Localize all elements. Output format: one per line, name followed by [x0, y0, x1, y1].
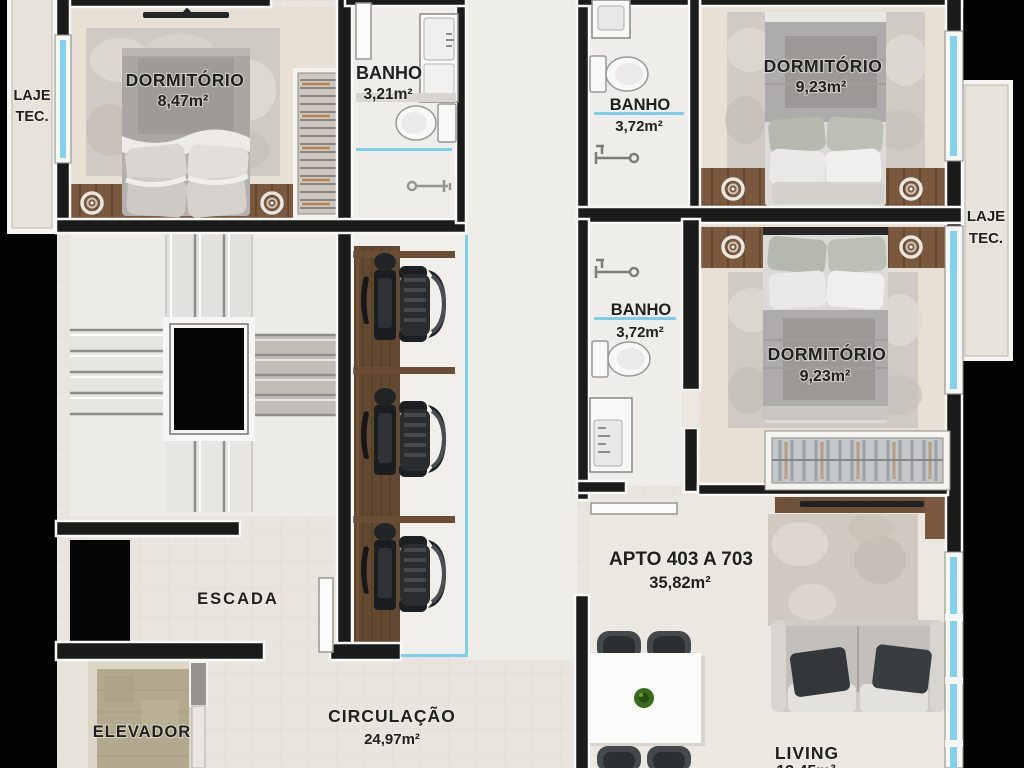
- svg-text:TEC.: TEC.: [969, 230, 1003, 247]
- svg-text:3,21m²: 3,21m²: [363, 86, 412, 103]
- svg-text:9,23m²: 9,23m²: [800, 368, 851, 385]
- svg-text:BANHO: BANHO: [610, 96, 671, 114]
- svg-text:24,97m²: 24,97m²: [364, 731, 420, 748]
- svg-text:35,82m²: 35,82m²: [649, 574, 711, 592]
- svg-text:ELEVADOR: ELEVADOR: [93, 723, 191, 741]
- svg-text:DORMITÓRIO: DORMITÓRIO: [764, 55, 883, 76]
- svg-text:LAJE: LAJE: [967, 208, 1005, 225]
- svg-text:BANHO: BANHO: [611, 301, 672, 319]
- svg-text:CIRCULAÇÃO: CIRCULAÇÃO: [328, 705, 456, 726]
- svg-text:3,72m²: 3,72m²: [615, 118, 663, 135]
- svg-text:LAJE: LAJE: [13, 88, 50, 104]
- svg-text:BANHO: BANHO: [356, 63, 422, 83]
- svg-text:LIVING: LIVING: [775, 743, 839, 763]
- svg-text:3,72m²: 3,72m²: [616, 324, 664, 341]
- svg-text:13,45m²: 13,45m²: [776, 763, 836, 768]
- svg-text:TEC.: TEC.: [15, 109, 48, 125]
- svg-text:DORMITÓRIO: DORMITÓRIO: [768, 343, 887, 364]
- svg-text:9,23m²: 9,23m²: [796, 79, 847, 96]
- svg-text:DORMITÓRIO: DORMITÓRIO: [126, 69, 245, 90]
- svg-text:8,47m²: 8,47m²: [158, 93, 209, 110]
- svg-text:ESCADA: ESCADA: [197, 590, 279, 608]
- svg-text:APTO 403 A 703: APTO 403 A 703: [609, 549, 753, 570]
